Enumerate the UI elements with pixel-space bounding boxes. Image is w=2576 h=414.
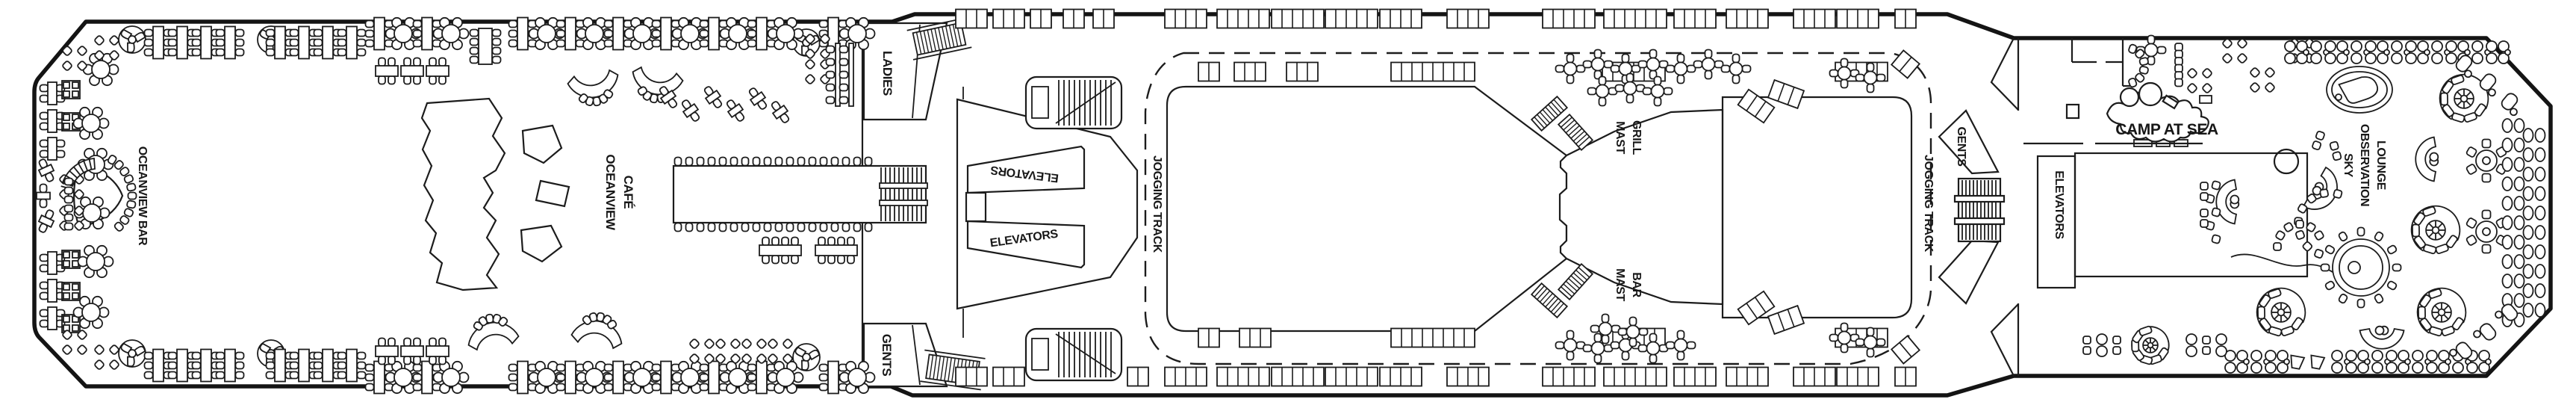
stool bbox=[865, 158, 872, 166]
deck-plan-page: OCEANVIEW BAR OCEANVIEW CAFÉ LADIES GENT… bbox=[0, 0, 2576, 414]
deck-fan-icon bbox=[119, 26, 146, 54]
side-table bbox=[2505, 50, 2510, 55]
sky-lounge-label3: LOUNGE bbox=[2374, 140, 2387, 191]
stool bbox=[843, 158, 850, 166]
sunbed-row bbox=[1447, 10, 1489, 28]
chair bbox=[2295, 230, 2305, 240]
stool bbox=[2139, 58, 2149, 66]
sky-lounge-label2: OBSERVATION bbox=[2358, 124, 2371, 206]
aft-central-stairs bbox=[1955, 179, 2004, 241]
side-table bbox=[2445, 359, 2451, 365]
stool bbox=[753, 223, 760, 232]
sunbed-row bbox=[1030, 10, 1051, 28]
sunbed-row bbox=[1895, 368, 1916, 386]
sunbed-row bbox=[1447, 368, 1489, 386]
stool bbox=[809, 158, 816, 166]
sunbed-row bbox=[1793, 10, 1835, 28]
chair bbox=[2175, 43, 2183, 51]
stair-block bbox=[1026, 77, 1121, 129]
sunbed-row bbox=[956, 368, 987, 386]
chair bbox=[2175, 58, 2183, 65]
chair bbox=[2274, 243, 2281, 250]
chair bbox=[2175, 72, 2183, 79]
stool bbox=[742, 223, 749, 232]
elevator-core bbox=[966, 193, 986, 221]
gents-forward-label: GENTS bbox=[880, 334, 894, 377]
mast-bar-label2: BAR bbox=[1630, 272, 1643, 297]
side-table bbox=[2284, 359, 2289, 365]
sunbed-row bbox=[1287, 63, 1318, 81]
stool bbox=[798, 223, 805, 232]
sunbed-row bbox=[1543, 10, 1595, 28]
sunbed-row bbox=[1543, 368, 1595, 386]
stool bbox=[65, 188, 73, 194]
stool bbox=[675, 158, 682, 166]
chair bbox=[2212, 235, 2221, 244]
side-table bbox=[2486, 359, 2491, 365]
sunbed-row bbox=[1127, 368, 1148, 386]
camp-at-sea-label: CAMP AT SEA bbox=[2115, 121, 2218, 138]
chair bbox=[2320, 189, 2329, 198]
stool bbox=[65, 197, 73, 203]
jogging-track-aft-label: JOGGING TRACK bbox=[1922, 155, 1935, 253]
sunbed-row bbox=[1726, 368, 1768, 386]
sunbed-row bbox=[1604, 10, 1667, 28]
dining-table bbox=[338, 27, 366, 59]
side-table bbox=[2244, 359, 2249, 365]
deck-fan-icon bbox=[119, 340, 146, 368]
mast-bar-label: MAST bbox=[1614, 268, 1626, 301]
stool bbox=[753, 158, 760, 166]
sunbed-row bbox=[1837, 368, 1879, 386]
chair bbox=[2314, 249, 2324, 259]
sunbed-row bbox=[1380, 10, 1422, 28]
sunbed-row bbox=[1793, 368, 1835, 386]
sunbed-row bbox=[1234, 63, 1266, 81]
stool bbox=[809, 223, 816, 232]
sky-lounge-label: SKY bbox=[2342, 153, 2354, 177]
stool bbox=[709, 223, 715, 232]
stool bbox=[787, 223, 794, 232]
stool bbox=[731, 223, 738, 232]
stool bbox=[731, 158, 738, 166]
chair bbox=[2212, 208, 2221, 217]
stool bbox=[776, 223, 783, 232]
stool bbox=[675, 223, 682, 232]
stool-counter bbox=[827, 43, 841, 106]
stool bbox=[127, 183, 137, 191]
stool-counter bbox=[840, 43, 854, 106]
sunbed-row bbox=[1837, 10, 1879, 28]
side-table bbox=[2384, 50, 2389, 55]
stool bbox=[127, 200, 137, 208]
stool bbox=[821, 223, 827, 232]
dining-table bbox=[217, 350, 244, 382]
stool bbox=[865, 223, 872, 232]
sunbed-row bbox=[1391, 329, 1475, 347]
stool bbox=[709, 158, 715, 166]
sunbed-row bbox=[956, 10, 987, 28]
sunbed-row bbox=[1239, 329, 1271, 347]
mast-grill-label2: GRILL bbox=[1630, 120, 1643, 155]
gents-aft-label: GENTS bbox=[1955, 126, 1967, 167]
oceanview-cafe-label2: CAFÉ bbox=[621, 176, 635, 209]
sunbed-row bbox=[1325, 10, 1378, 28]
chair bbox=[2175, 79, 2183, 87]
sunbed-row bbox=[1198, 329, 1219, 347]
buffet-counter bbox=[673, 166, 926, 223]
dining-table bbox=[217, 27, 244, 59]
stair-block bbox=[1026, 329, 1121, 380]
side-table bbox=[2405, 359, 2410, 365]
sunbed-row bbox=[1272, 10, 1324, 28]
chair bbox=[2212, 181, 2221, 190]
sunbed-row bbox=[1217, 10, 1269, 28]
dining-table bbox=[338, 350, 366, 382]
sunbed-row bbox=[1726, 10, 1768, 28]
sunbed-row bbox=[1217, 368, 1269, 386]
sunbed-row bbox=[1391, 63, 1475, 81]
sunbed-row bbox=[1325, 368, 1378, 386]
chair bbox=[2175, 65, 2183, 72]
side-table bbox=[2365, 359, 2370, 365]
stool bbox=[2139, 66, 2149, 74]
stool bbox=[742, 158, 749, 166]
sunbed-row bbox=[1165, 10, 1207, 28]
sunbed-row bbox=[993, 10, 1024, 28]
stool bbox=[776, 158, 783, 166]
sunbed-row bbox=[1165, 368, 1207, 386]
stool bbox=[765, 158, 771, 166]
stool bbox=[720, 223, 727, 232]
ladies-label: LADIES bbox=[880, 51, 895, 96]
stool bbox=[798, 158, 805, 166]
stool bbox=[697, 158, 704, 166]
sunbed-row bbox=[1272, 368, 1324, 386]
sunbed-row bbox=[1198, 63, 1219, 81]
sunbed-row bbox=[1063, 10, 1084, 28]
stool bbox=[821, 158, 827, 166]
stool bbox=[686, 158, 693, 166]
sunbed-row bbox=[1093, 10, 1114, 28]
stool bbox=[832, 158, 839, 166]
stool bbox=[697, 223, 704, 232]
elevators-aft-label: ELEVATORS bbox=[2053, 170, 2065, 239]
sunbed-row bbox=[1674, 368, 1716, 386]
stool bbox=[854, 223, 861, 232]
sunbed-row bbox=[1674, 10, 1716, 28]
jogging-track-forward-label: JOGGING TRACK bbox=[1151, 155, 1163, 253]
sunbed-row bbox=[1895, 10, 1916, 28]
deck-plan: OCEANVIEW BAR OCEANVIEW CAFÉ LADIES GENT… bbox=[0, 0, 2576, 414]
stool bbox=[843, 223, 850, 232]
oceanview-bar-label: OCEANVIEW BAR bbox=[136, 146, 149, 246]
sunbed-row bbox=[1380, 368, 1422, 386]
mast-grill-label: MAST bbox=[1614, 121, 1626, 154]
stool bbox=[787, 158, 794, 166]
grand-piano-icon bbox=[2327, 67, 2392, 113]
stool bbox=[832, 223, 839, 232]
side-table bbox=[2303, 50, 2309, 55]
stool bbox=[720, 158, 727, 166]
side-table bbox=[2424, 50, 2430, 55]
chair bbox=[2175, 51, 2183, 58]
sunbed-row bbox=[1604, 368, 1667, 386]
stool bbox=[854, 158, 861, 166]
chair bbox=[2333, 189, 2342, 198]
stool bbox=[65, 179, 73, 185]
stool bbox=[65, 223, 73, 230]
side-table bbox=[2344, 50, 2349, 55]
stool bbox=[686, 223, 693, 232]
side-table bbox=[2465, 50, 2470, 55]
stool bbox=[765, 223, 771, 232]
sunbed-row bbox=[993, 368, 1024, 386]
oceanview-cafe-label: OCEANVIEW bbox=[603, 154, 617, 231]
stool bbox=[65, 214, 73, 221]
stool bbox=[128, 193, 137, 200]
chair bbox=[2296, 220, 2303, 228]
stool bbox=[65, 206, 73, 212]
